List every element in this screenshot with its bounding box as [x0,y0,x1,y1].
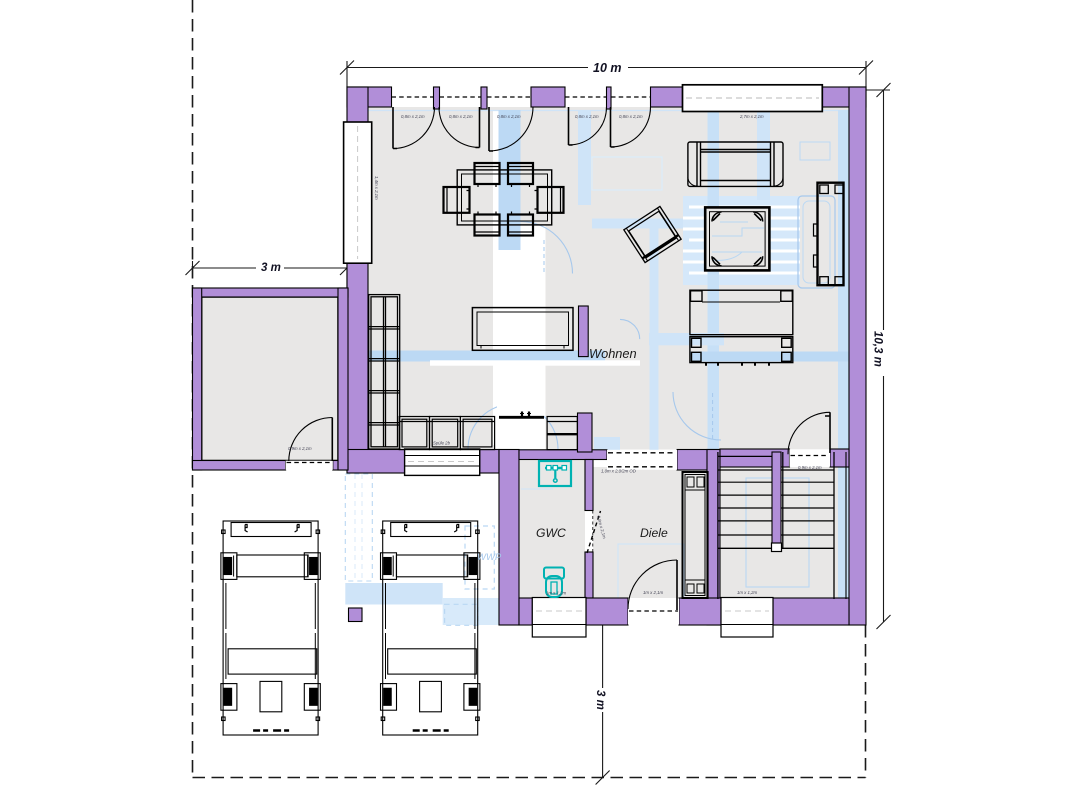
svg-text:Spüle 2b: Spüle 2b [433,441,451,446]
svg-text:0,8m x 2,1m: 0,8m x 2,1m [575,114,599,119]
svg-text:0,8m x 2,1m: 0,8m x 2,1m [619,114,643,119]
svg-text:3 m: 3 m [594,690,606,710]
svg-text:1m x 2,1m: 1m x 2,1m [643,590,663,595]
svg-text:1m x 1,2m: 1m x 1,2m [546,591,566,596]
svg-text:1,4m x 2,1m: 1,4m x 2,1m [374,176,379,200]
svg-text:10,3 m: 10,3 m [872,331,884,367]
svg-text:0,9m x 2,1m: 0,9m x 2,1m [288,446,312,451]
svg-text:10 m: 10 m [593,61,622,75]
svg-text:3 m: 3 m [261,262,281,274]
svg-text:Wohnen: Wohnen [589,346,637,361]
svg-text:1,0m x 2,0/2m OD: 1,0m x 2,0/2m OD [601,469,636,474]
svg-text:GWC: GWC [536,526,566,540]
svg-text:0,8m x 2,1m: 0,8m x 2,1m [401,114,425,119]
svg-text:Diele: Diele [640,526,668,540]
svg-text:2,7m x 2,1m: 2,7m x 2,1m [739,114,764,119]
svg-text:0,8m x 2,1m: 0,8m x 2,1m [497,114,521,119]
svg-text:0,9m x 2,1m: 0,9m x 2,1m [798,465,822,470]
svg-text:1m x 1,2m: 1m x 1,2m [737,590,757,595]
svg-text:WWP: WWP [477,552,502,563]
svg-text:0,8m x 2,1m: 0,8m x 2,1m [449,114,473,119]
